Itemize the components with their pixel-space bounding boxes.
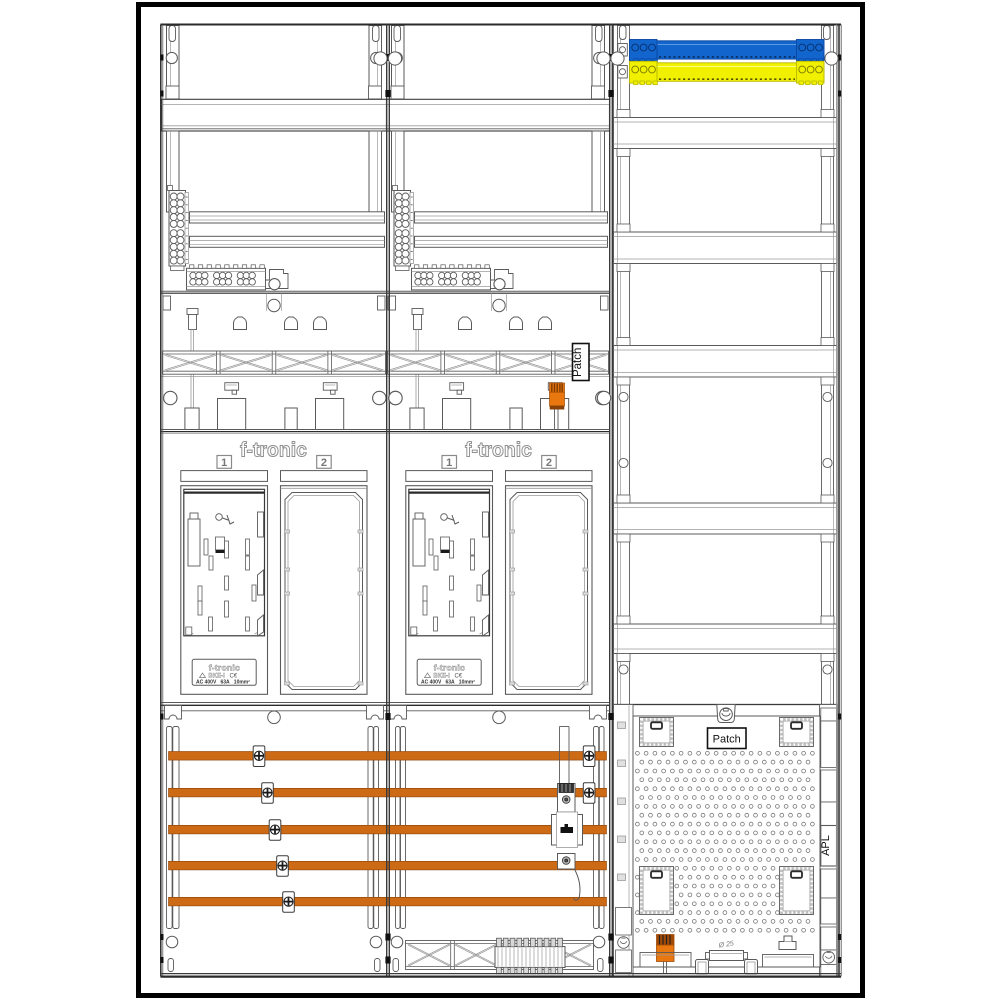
svg-text:Patch: Patch	[572, 348, 584, 377]
svg-text:f-tronic: f-tronic	[465, 439, 532, 462]
svg-text:Patch: Patch	[713, 733, 741, 745]
svg-text:f-tronic: f-tronic	[434, 663, 465, 673]
svg-text:f-tronic: f-tronic	[209, 663, 240, 673]
svg-text:AC 400V 63A 10mm²: AC 400V 63A 10mm²	[421, 680, 475, 686]
svg-text:1: 1	[446, 457, 452, 469]
svg-text:AC 400V 63A 10mm²: AC 400V 63A 10mm²	[196, 680, 250, 686]
svg-text:APL: APL	[820, 835, 832, 856]
svg-text:2: 2	[546, 457, 552, 469]
svg-text:2: 2	[321, 457, 327, 469]
svg-text:1: 1	[221, 457, 227, 469]
svg-text:f-tronic: f-tronic	[240, 439, 307, 462]
